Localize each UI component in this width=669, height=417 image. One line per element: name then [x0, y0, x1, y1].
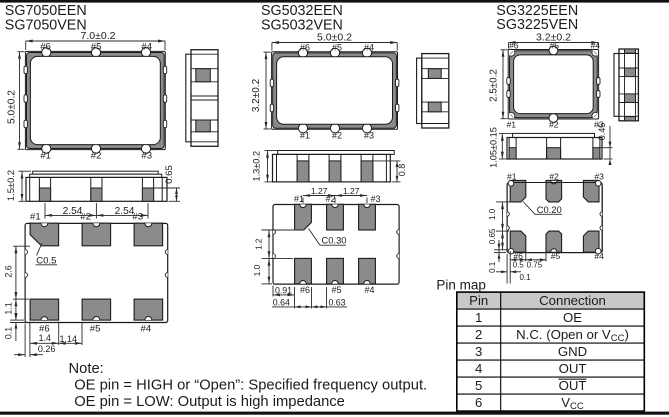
svg-text:0.75: 0.75 [527, 261, 543, 270]
svg-text:1.4: 1.4 [39, 333, 51, 343]
svg-text:0.1: 0.1 [519, 273, 531, 282]
svg-text:#4: #4 [365, 285, 375, 295]
svg-text:1.1: 1.1 [3, 302, 13, 314]
svg-text:OE: OE [563, 310, 582, 325]
svg-text:#4: #4 [141, 42, 152, 53]
svg-text:#5: #5 [332, 285, 342, 295]
svg-text:#4: #4 [141, 324, 152, 335]
svg-text:C0.30: C0.30 [322, 235, 347, 246]
svg-text:N.C. (Open or VCC): N.C. (Open or VCC) [516, 327, 629, 344]
svg-text:OE pin = LOW: Output is high i: OE pin = LOW: Output is high impedance [74, 394, 345, 410]
svg-text:Pin map: Pin map [436, 277, 486, 292]
svg-text:#5: #5 [90, 324, 101, 335]
svg-text:#2: #2 [80, 211, 91, 222]
svg-text:1.5±0.2: 1.5±0.2 [5, 170, 16, 201]
svg-text:5.0±0.2: 5.0±0.2 [6, 90, 17, 124]
svg-text:#5: #5 [332, 42, 342, 52]
svg-text:1.0: 1.0 [488, 208, 497, 220]
svg-text:Note:: Note: [69, 361, 104, 377]
svg-text:#2: #2 [549, 120, 559, 130]
svg-text:#4: #4 [594, 251, 604, 261]
svg-text:1.3±0.2: 1.3±0.2 [252, 151, 262, 182]
svg-text:1.05±0.15: 1.05±0.15 [488, 127, 498, 168]
svg-text:6: 6 [475, 395, 482, 410]
svg-text:#5: #5 [91, 42, 102, 53]
svg-text:#1: #1 [507, 171, 517, 181]
svg-text:0.26: 0.26 [38, 344, 56, 354]
svg-text:1.27: 1.27 [343, 186, 360, 196]
svg-text:#5: #5 [550, 41, 560, 51]
svg-text:#1: #1 [507, 120, 517, 130]
svg-text:C0.20: C0.20 [537, 204, 562, 215]
svg-text:2: 2 [475, 327, 482, 342]
svg-text:1.14: 1.14 [60, 334, 78, 344]
svg-text:0.45: 0.45 [597, 123, 607, 141]
svg-text:#3: #3 [594, 171, 604, 181]
svg-text:#2: #2 [549, 171, 559, 181]
svg-text:#1: #1 [294, 194, 304, 204]
svg-text:#1: #1 [300, 130, 310, 140]
svg-text:#3: #3 [132, 211, 143, 222]
svg-text:#3: #3 [141, 151, 152, 162]
svg-text:#6: #6 [40, 42, 51, 53]
svg-text:#5: #5 [551, 251, 561, 261]
svg-text:VCC: VCC [561, 395, 584, 412]
svg-text:0.91: 0.91 [275, 285, 292, 295]
svg-text:1: 1 [475, 310, 482, 325]
svg-text:#1: #1 [40, 151, 51, 162]
svg-text:#6: #6 [509, 41, 519, 51]
svg-text:OUT: OUT [559, 361, 587, 376]
svg-text:1.0: 1.0 [253, 264, 262, 276]
svg-text:2.5±0.2: 2.5±0.2 [488, 69, 499, 102]
svg-text:#6: #6 [300, 285, 310, 295]
svg-text:5: 5 [475, 378, 482, 393]
svg-text:4: 4 [475, 361, 482, 376]
svg-text:0.1: 0.1 [3, 327, 13, 339]
svg-text:0.65: 0.65 [488, 228, 497, 244]
svg-text:#2: #2 [332, 130, 342, 140]
svg-text:#4: #4 [591, 41, 601, 51]
svg-text:0.65: 0.65 [164, 165, 175, 184]
svg-text:0.1: 0.1 [488, 261, 497, 273]
svg-text:3: 3 [475, 344, 482, 359]
svg-text:1.2: 1.2 [255, 238, 264, 250]
svg-text:#1: #1 [30, 211, 41, 222]
svg-text:#3: #3 [371, 194, 381, 204]
svg-text:0.5: 0.5 [513, 261, 525, 270]
svg-text:7.0±0.2: 7.0±0.2 [81, 30, 116, 42]
svg-text:1.27: 1.27 [311, 186, 328, 196]
svg-text:GND: GND [558, 344, 587, 359]
svg-text:#3: #3 [364, 130, 374, 140]
svg-text:#6: #6 [300, 42, 310, 52]
svg-text:OUT: OUT [559, 378, 587, 393]
svg-text:SG7050VEN: SG7050VEN [5, 18, 87, 34]
svg-text:OE pin = HIGH or “Open”: Speci: OE pin = HIGH or “Open”: Specified frequ… [74, 377, 427, 393]
svg-text:0.8: 0.8 [397, 164, 407, 177]
svg-text:3.2±0.2: 3.2±0.2 [251, 78, 262, 112]
svg-text:C0.5: C0.5 [36, 255, 56, 266]
svg-text:Connection: Connection [539, 293, 606, 308]
svg-text:2.6: 2.6 [3, 265, 13, 277]
svg-text:#2: #2 [91, 151, 102, 162]
svg-text:Pin: Pin [469, 293, 488, 308]
svg-text:0.63: 0.63 [328, 297, 345, 307]
svg-text:0.64: 0.64 [273, 297, 290, 307]
svg-text:#4: #4 [364, 42, 374, 52]
